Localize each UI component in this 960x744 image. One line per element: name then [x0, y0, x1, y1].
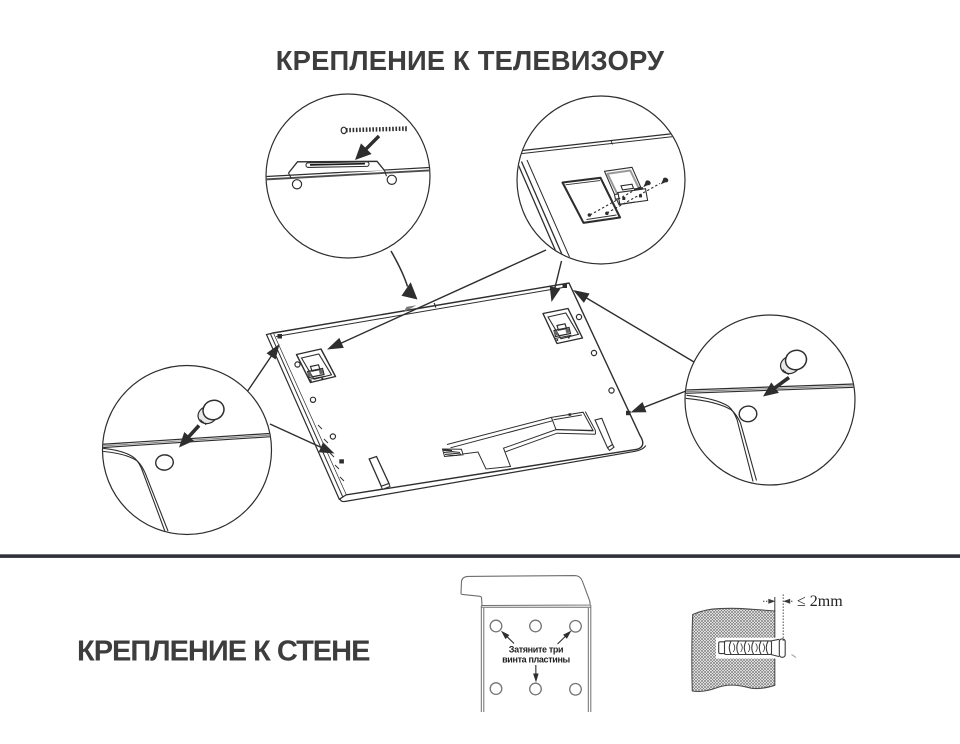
- svg-text:≤ 2mm: ≤ 2mm: [797, 593, 843, 610]
- svg-text:Затяните три: Затяните три: [509, 645, 563, 655]
- svg-text:КРЕПЛЕНИЕ К ТЕЛЕВИЗОРУ: КРЕПЛЕНИЕ К ТЕЛЕВИЗОРУ: [276, 45, 665, 76]
- svg-text:КРЕПЛЕНИЕ К СТЕНЕ: КРЕПЛЕНИЕ К СТЕНЕ: [77, 636, 370, 668]
- svg-text:винта пластины: винта пластины: [502, 655, 570, 665]
